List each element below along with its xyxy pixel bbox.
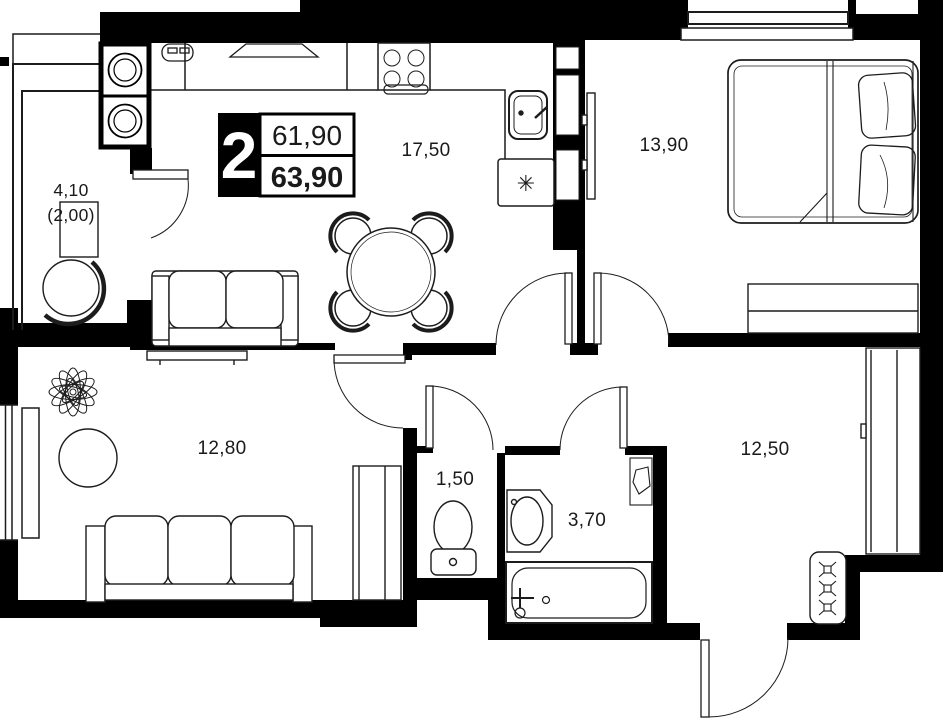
badge-living-area: 61,90 bbox=[272, 120, 342, 151]
wall bbox=[300, 0, 585, 43]
living-window bbox=[0, 405, 18, 540]
wall bbox=[497, 453, 505, 580]
wall bbox=[0, 57, 9, 66]
wall bbox=[570, 343, 598, 355]
bathtub bbox=[506, 562, 652, 623]
kitchen-sofa bbox=[152, 271, 298, 346]
balcony-chair bbox=[43, 260, 99, 316]
kitchen-area-label: 17,50 bbox=[401, 140, 450, 161]
wall bbox=[920, 14, 943, 572]
bed bbox=[728, 60, 918, 223]
wall bbox=[412, 578, 505, 600]
vent-shaft bbox=[556, 150, 579, 200]
dresser bbox=[748, 284, 918, 333]
bedroom-door bbox=[594, 273, 669, 344]
wall bbox=[412, 343, 496, 355]
wall bbox=[127, 300, 152, 347]
living-area-label: 12,80 bbox=[197, 438, 246, 459]
living-window-sill bbox=[22, 408, 39, 538]
badge-rooms-count: 2 bbox=[221, 118, 258, 192]
wall bbox=[320, 600, 417, 627]
balcony-door bbox=[133, 170, 188, 238]
wall bbox=[505, 446, 560, 455]
bathroom-shelf bbox=[630, 458, 652, 505]
wall bbox=[7, 323, 130, 347]
wall bbox=[668, 333, 920, 347]
kettle bbox=[162, 44, 193, 61]
hall-closet bbox=[861, 348, 920, 554]
wall bbox=[0, 330, 18, 405]
tv-stand bbox=[147, 351, 247, 365]
entrance-door bbox=[701, 638, 788, 717]
living-wardrobe bbox=[353, 466, 401, 600]
stove bbox=[378, 43, 430, 94]
bedroom-window bbox=[688, 12, 848, 24]
living-sofa bbox=[86, 516, 312, 602]
wc-area-label: 1,50 bbox=[436, 469, 474, 490]
wall bbox=[100, 12, 302, 43]
dining-set bbox=[330, 213, 451, 330]
bathroom-door bbox=[560, 387, 627, 450]
washer-dryer bbox=[101, 44, 149, 147]
bedroom-area-label: 13,90 bbox=[639, 135, 688, 156]
floor-plan: 4,10 (2,00) 17,50 13,90 12,80 12,50 1,50… bbox=[0, 0, 943, 719]
plant bbox=[48, 367, 97, 416]
toilet bbox=[431, 501, 476, 575]
wall bbox=[0, 308, 18, 330]
wall bbox=[585, 0, 688, 40]
hallway-furniture bbox=[810, 348, 920, 624]
wall bbox=[577, 250, 585, 345]
dishwasher-asterisk-icon: ✳ bbox=[517, 171, 535, 196]
hood bbox=[230, 44, 318, 57]
wall bbox=[553, 43, 585, 250]
wall bbox=[625, 446, 653, 455]
pouf bbox=[59, 429, 117, 487]
dining-table bbox=[347, 228, 435, 316]
wc-door bbox=[426, 386, 493, 450]
bathroom-area-label: 3,70 bbox=[568, 510, 606, 531]
kitchen-sink bbox=[509, 91, 547, 139]
shoe-cabinet bbox=[810, 552, 846, 624]
floor-plan-svg: 4,10 (2,00) 17,50 13,90 12,80 12,50 1,50… bbox=[0, 0, 943, 719]
kitchen-door bbox=[496, 273, 572, 345]
wall bbox=[845, 555, 920, 572]
wall-notch bbox=[856, 0, 918, 14]
living-furniture bbox=[48, 351, 401, 602]
balcony-reduced-area-label: (2,00) bbox=[47, 205, 95, 225]
area-badge: 2 61,90 63,90 bbox=[218, 113, 354, 197]
wall bbox=[653, 446, 667, 623]
bedroom-window-sill bbox=[681, 28, 853, 40]
badge-total-area: 63,90 bbox=[271, 162, 344, 194]
wall bbox=[488, 623, 700, 640]
vent-shaft bbox=[556, 75, 579, 135]
hallway-area-label: 12,50 bbox=[740, 439, 789, 460]
bedroom-furniture bbox=[582, 60, 918, 333]
balcony-area-label: 4,10 bbox=[53, 180, 88, 200]
balcony-glazing-return bbox=[13, 34, 100, 64]
living-room-door bbox=[334, 355, 405, 428]
vent-shaft bbox=[556, 47, 579, 69]
bathroom-sink bbox=[507, 490, 552, 552]
